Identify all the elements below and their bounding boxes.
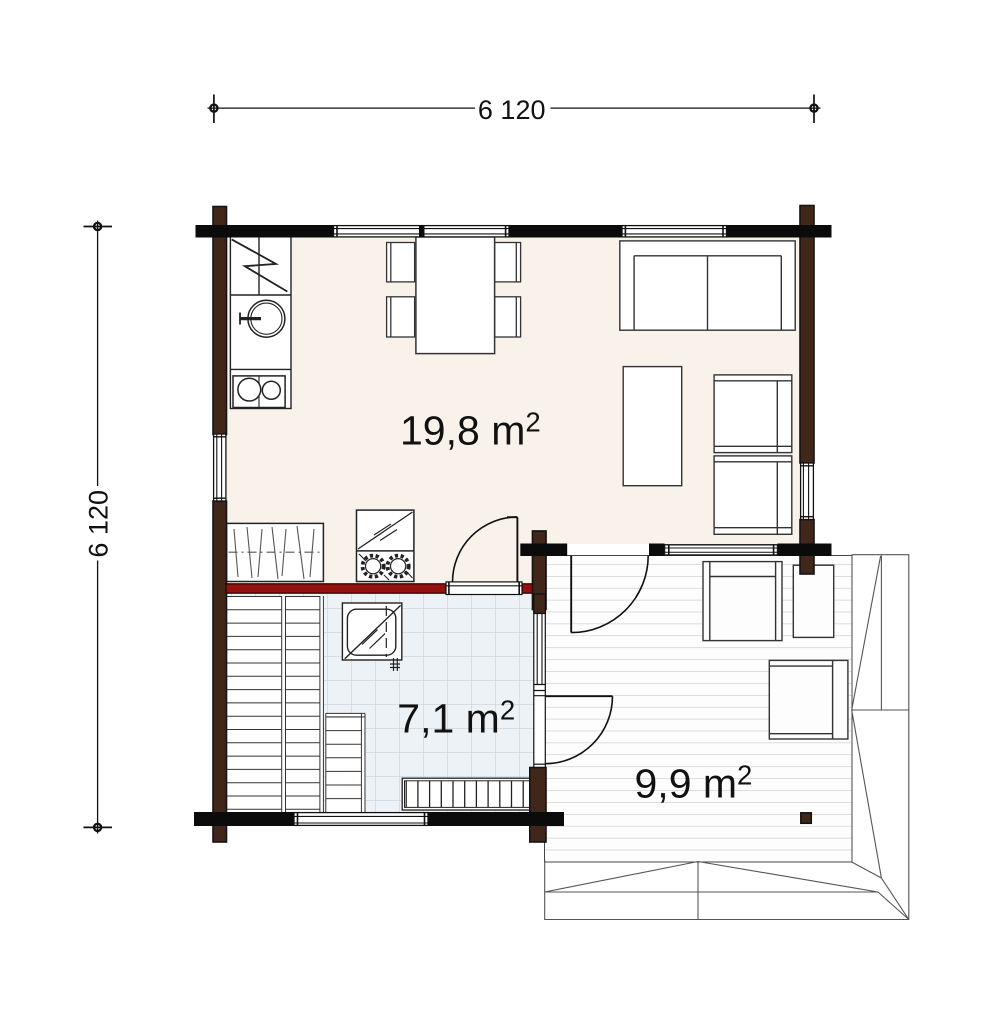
svg-text:6 120: 6 120 <box>478 95 546 125</box>
svg-text:7,1 m2: 7,1 m2 <box>397 695 515 742</box>
svg-text:19,8 m2: 19,8 m2 <box>400 406 541 453</box>
svg-text:6 120: 6 120 <box>84 490 114 558</box>
svg-text:9,9 m2: 9,9 m2 <box>635 759 753 806</box>
